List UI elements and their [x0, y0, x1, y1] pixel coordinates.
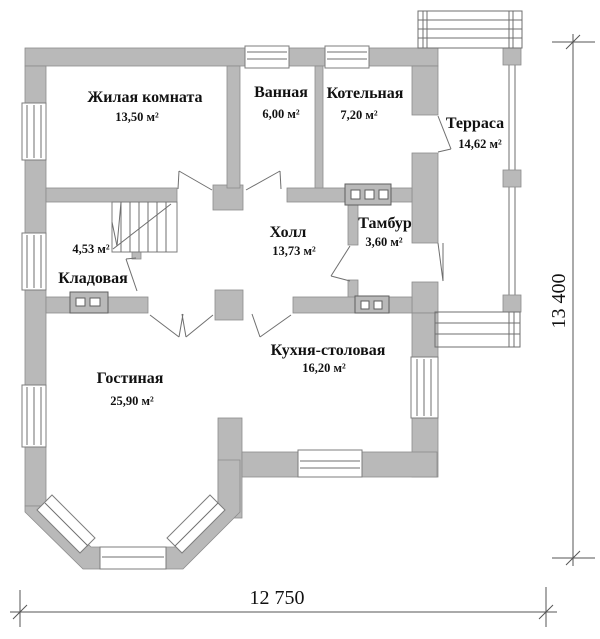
label-living-room-name: Жилая комната — [87, 89, 202, 106]
wall-bath-boiler-divider — [315, 66, 323, 188]
door-entrance-vestibule — [438, 243, 443, 281]
door-bathroom — [246, 171, 281, 190]
window-kitchen-right — [411, 357, 438, 418]
window-living-left — [22, 103, 46, 160]
window-kitchen-bottom — [298, 450, 362, 477]
dimension-right: 13 400 — [548, 34, 595, 566]
label-lounge-area: 25,90 м² — [110, 394, 154, 408]
label-lounge-name: Гостиная — [97, 370, 164, 387]
door-living-room — [178, 171, 212, 190]
door-hall-to-lounge-double — [150, 314, 213, 337]
wall-right-mid — [412, 153, 438, 243]
terrace-post-middle — [503, 170, 521, 187]
wall-right-vestibule — [412, 282, 438, 313]
label-boiler-room-area: 7,20 м² — [340, 108, 378, 122]
label-kitchen-area: 16,20 м² — [302, 361, 346, 375]
window-bay-bottom — [100, 547, 166, 569]
dimension-bottom: 12 750 — [10, 587, 557, 627]
vent-block-storage — [70, 292, 108, 313]
wall-right-upper — [412, 66, 438, 115]
dimension-width-label: 12 750 — [250, 587, 305, 609]
dimension-height-label: 13 400 — [548, 274, 570, 329]
wall-pillar-hall-top — [213, 185, 243, 210]
label-kitchen-name: Кухня-столовая — [271, 342, 386, 359]
door-vestibule-to-hall — [331, 246, 350, 281]
wall-right-kitchen-upper — [412, 313, 438, 357]
wall-living-bath-divider — [227, 66, 240, 188]
label-bathroom-name: Ванная — [254, 84, 308, 101]
label-terrace-area: 14,62 м² — [458, 137, 502, 151]
label-hall-name: Холл — [270, 224, 307, 241]
wall-pillar-hall-bottom — [215, 290, 243, 320]
wall-vestibule-left — [348, 202, 358, 245]
wall-top — [25, 48, 438, 66]
wall-lower-horizontal-right — [293, 297, 412, 313]
label-living-room-area: 13,50 м² — [115, 110, 159, 124]
label-boiler-room-name: Котельная — [327, 85, 404, 102]
window-storage-left — [22, 233, 46, 290]
window-lounge-left — [22, 385, 46, 447]
label-hall-area: 13,73 м² — [272, 244, 316, 258]
window-bathroom-top — [245, 46, 289, 68]
floor-plan-drawing: 12 750 13 400 Жилая комната 13,50 м² Ван… — [0, 0, 600, 639]
porch-steps-top — [418, 11, 522, 48]
terrace-post-bottom — [503, 295, 521, 312]
vent-block-boiler — [345, 184, 391, 205]
label-vestibule-name: Тамбур — [358, 215, 412, 232]
steps-terrace-bottom — [435, 312, 520, 347]
door-hall-to-kitchen — [252, 314, 291, 337]
label-bathroom-area: 6,00 м² — [262, 107, 300, 121]
window-boiler-top — [325, 46, 369, 68]
label-vestibule-area: 3,60 м² — [365, 235, 403, 249]
terrace-post-top — [503, 48, 521, 65]
staircase — [112, 202, 177, 252]
label-terrace-name: Терраса — [446, 115, 504, 132]
label-storage-name: Кладовая — [58, 270, 128, 287]
wall-mid-horizontal-left — [46, 188, 177, 202]
label-storage-area: 4,53 м² — [72, 242, 110, 256]
vent-block-kitchen — [355, 296, 389, 313]
floor-plan-page: 12 750 13 400 Жилая комната 13,50 м² Ван… — [0, 0, 600, 639]
